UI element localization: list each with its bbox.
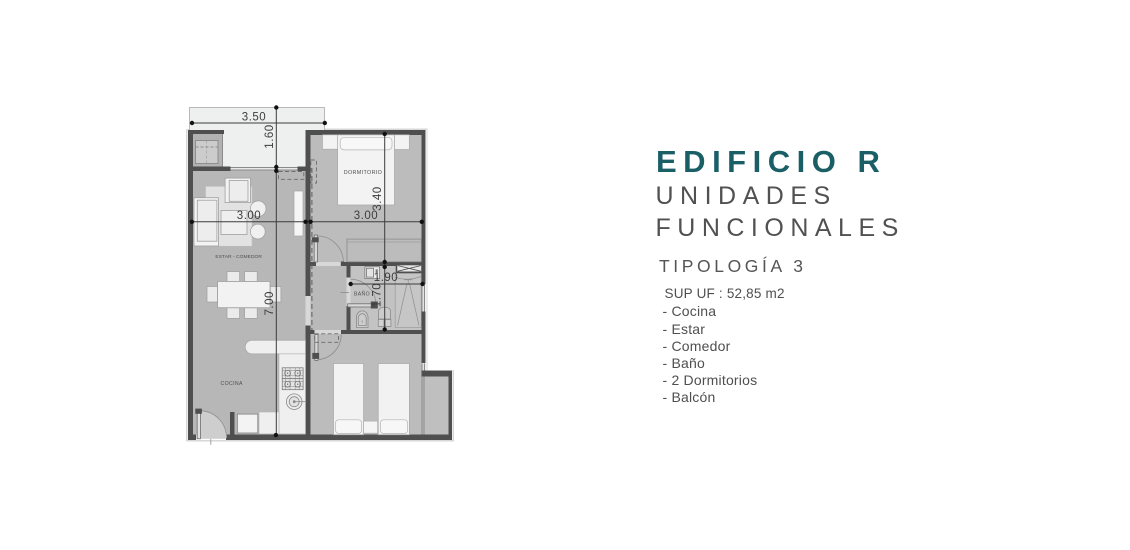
svg-text:1.90: 1.90 (374, 272, 398, 284)
svg-text:3.00: 3.00 (237, 210, 261, 222)
svg-text:3.00: 3.00 (354, 210, 378, 222)
svg-text:1.70: 1.70 (372, 283, 384, 307)
svg-text:1.60: 1.60 (264, 124, 276, 148)
svg-text:7.00: 7.00 (264, 291, 276, 315)
svg-text:BAÑO: BAÑO (354, 290, 370, 297)
svg-text:DORMITORIO: DORMITORIO (344, 170, 382, 176)
svg-text:COCINA: COCINA (221, 381, 243, 387)
svg-text:3.50: 3.50 (242, 111, 266, 123)
svg-text:ESTAR - COMEDOR: ESTAR - COMEDOR (215, 254, 262, 260)
svg-text:3.40: 3.40 (372, 186, 384, 210)
